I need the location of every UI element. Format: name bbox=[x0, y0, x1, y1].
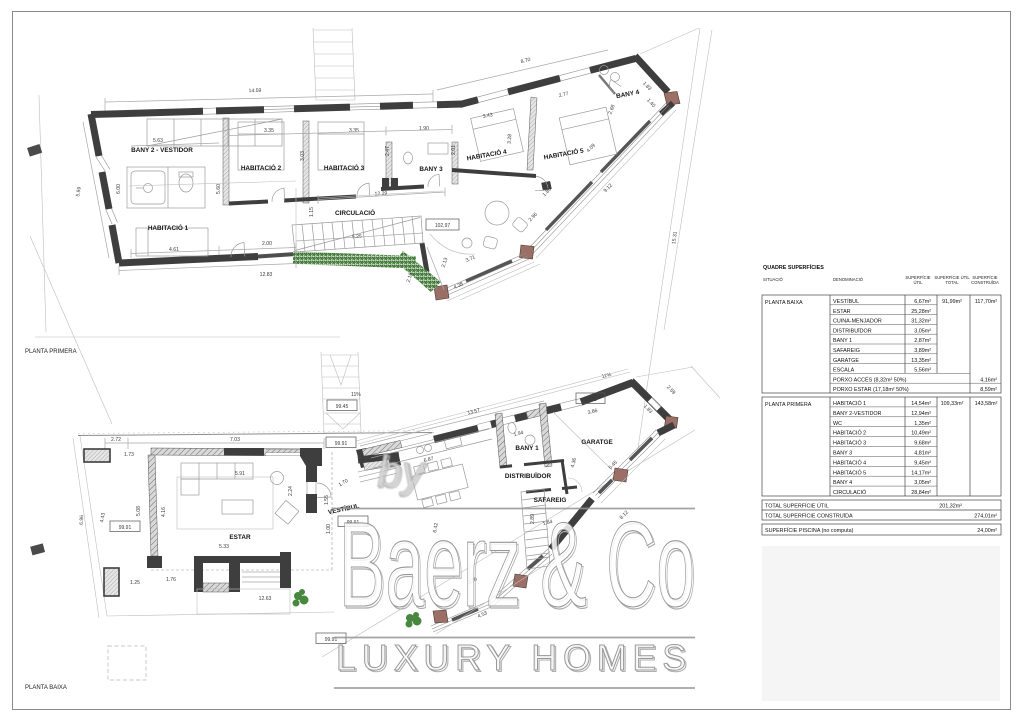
svg-text:99.45: 99.45 bbox=[336, 404, 349, 410]
svg-text:1.25: 1.25 bbox=[130, 580, 140, 586]
svg-text:PORXO ESTAR (17,18m² 50%): PORXO ESTAR (17,18m² 50%) bbox=[833, 387, 909, 393]
svg-text:BANY 2-VESTIDOR: BANY 2-VESTIDOR bbox=[833, 411, 882, 417]
svg-text:4,81m²: 4,81m² bbox=[914, 451, 931, 457]
svg-text:5.91: 5.91 bbox=[235, 471, 245, 477]
svg-text:HABITACIÓ 4: HABITACIÓ 4 bbox=[833, 459, 866, 466]
svg-text:TOTAL: TOTAL bbox=[945, 280, 959, 285]
svg-text:14,17m²: 14,17m² bbox=[911, 470, 931, 476]
svg-text:3,05m²: 3,05m² bbox=[914, 328, 931, 334]
svg-text:274,01m²: 274,01m² bbox=[974, 514, 997, 520]
svg-text:14.59: 14.59 bbox=[249, 88, 262, 94]
svg-text:5.60: 5.60 bbox=[216, 184, 222, 194]
svg-text:3.03: 3.03 bbox=[300, 151, 306, 161]
svg-text:TOTAL SUPERFÍCIE CONSTRUÏDA: TOTAL SUPERFÍCIE CONSTRUÏDA bbox=[765, 513, 853, 520]
svg-text:5.63: 5.63 bbox=[153, 138, 163, 144]
svg-text:HABITACIÓ 5: HABITACIÓ 5 bbox=[833, 469, 866, 476]
svg-text:12.63: 12.63 bbox=[259, 596, 272, 602]
svg-text:CIRCULACIÓ: CIRCULACIÓ bbox=[335, 208, 375, 217]
svg-text:2,87m²: 2,87m² bbox=[914, 338, 931, 344]
svg-text:ÚTIL: ÚTIL bbox=[913, 280, 923, 285]
svg-text:28,84m²: 28,84m² bbox=[911, 490, 931, 496]
svg-text:5,56m²: 5,56m² bbox=[914, 368, 931, 374]
svg-text:LUXURY HOMES: LUXURY HOMES bbox=[336, 637, 692, 678]
svg-text:102,97: 102,97 bbox=[435, 223, 451, 229]
svg-text:117,70m²: 117,70m² bbox=[975, 299, 998, 305]
svg-text:BANY 3: BANY 3 bbox=[419, 166, 443, 173]
svg-text:8,59m²: 8,59m² bbox=[980, 387, 997, 393]
svg-text:PLANTA BAIXA: PLANTA BAIXA bbox=[25, 685, 67, 691]
svg-text:HABITACIÓ 2: HABITACIÓ 2 bbox=[833, 430, 866, 437]
svg-text:PLANTA PRIMERA: PLANTA PRIMERA bbox=[765, 402, 812, 408]
svg-text:9,68m²: 9,68m² bbox=[914, 441, 931, 447]
svg-text:1.90: 1.90 bbox=[419, 126, 429, 132]
svg-text:11%: 11% bbox=[351, 392, 361, 398]
svg-text:WC: WC bbox=[833, 421, 842, 427]
svg-text:CONSTRUÏDA: CONSTRUÏDA bbox=[971, 280, 999, 285]
svg-text:HABITACIÓ 1: HABITACIÓ 1 bbox=[148, 223, 189, 232]
svg-text:99.91: 99.91 bbox=[335, 441, 348, 447]
svg-text:12,94m²: 12,94m² bbox=[911, 411, 931, 417]
svg-text:SAFAREIG: SAFAREIG bbox=[833, 348, 860, 354]
svg-text:109,33m²: 109,33m² bbox=[941, 401, 964, 407]
svg-text:1.15: 1.15 bbox=[309, 207, 315, 217]
svg-text:BANY 4: BANY 4 bbox=[833, 480, 852, 486]
svg-text:CIRCULACIÓ: CIRCULACIÓ bbox=[833, 489, 866, 496]
svg-text:10,49m²: 10,49m² bbox=[911, 431, 931, 437]
svg-text:DISTRIBUÏDOR: DISTRIBUÏDOR bbox=[505, 472, 552, 480]
svg-text:3,89m²: 3,89m² bbox=[914, 348, 931, 354]
svg-text:ESCALA: ESCALA bbox=[833, 368, 855, 374]
svg-text:143,58m²: 143,58m² bbox=[975, 401, 998, 407]
svg-text:HABITACIÓ 3: HABITACIÓ 3 bbox=[324, 163, 365, 172]
svg-text:SUPERFÍCIE PISCINA (no computa: SUPERFÍCIE PISCINA (no computa) bbox=[765, 527, 854, 534]
svg-text:3.28: 3.28 bbox=[507, 134, 514, 144]
svg-text:3,05m²: 3,05m² bbox=[914, 480, 931, 486]
svg-text:2.01: 2.01 bbox=[451, 145, 457, 155]
svg-text:2.72: 2.72 bbox=[111, 437, 121, 443]
svg-text:99.91: 99.91 bbox=[119, 525, 132, 531]
svg-text:1.55: 1.55 bbox=[324, 495, 330, 505]
svg-text:3.35: 3.35 bbox=[349, 128, 359, 134]
svg-text:PLANTA BAIXA: PLANTA BAIXA bbox=[765, 300, 803, 306]
svg-text:BANY 2 - VESTIDOR: BANY 2 - VESTIDOR bbox=[131, 147, 193, 154]
svg-text:4.16: 4.16 bbox=[161, 507, 167, 517]
svg-text:12.83: 12.83 bbox=[260, 272, 273, 278]
svg-text:HABITACIÓ 3: HABITACIÓ 3 bbox=[833, 440, 866, 447]
svg-text:VESTÍBUL: VESTÍBUL bbox=[833, 298, 859, 305]
svg-text:25,28m²: 25,28m² bbox=[911, 309, 931, 315]
svg-text:31,32m²: 31,32m² bbox=[911, 319, 931, 325]
svg-text:ESTAR: ESTAR bbox=[229, 534, 251, 541]
svg-text:ESTAR: ESTAR bbox=[833, 309, 851, 315]
svg-text:BANY 1: BANY 1 bbox=[515, 445, 539, 452]
svg-text:DISTRIBUÏDOR: DISTRIBUÏDOR bbox=[833, 327, 872, 334]
svg-text:TOTAL SUPERFÍCIE ÚTIL: TOTAL SUPERFÍCIE ÚTIL bbox=[765, 503, 829, 510]
svg-text:91,99m²: 91,99m² bbox=[942, 299, 962, 305]
svg-text:GARATGE: GARATGE bbox=[581, 439, 613, 446]
svg-text:1.76: 1.76 bbox=[166, 577, 176, 583]
svg-text:99.91: 99.91 bbox=[584, 397, 597, 403]
svg-text:HABITACIÓ 1: HABITACIÓ 1 bbox=[833, 400, 866, 407]
svg-text:5.33: 5.33 bbox=[219, 544, 229, 550]
svg-text:5.08: 5.08 bbox=[136, 506, 142, 516]
svg-text:6,67m²: 6,67m² bbox=[914, 299, 931, 305]
svg-text:6.96: 6.96 bbox=[79, 515, 86, 525]
svg-text:QUADRE SUPERFÍCIES: QUADRE SUPERFÍCIES bbox=[763, 263, 824, 271]
svg-text:Baerz & Co: Baerz & Co bbox=[339, 496, 695, 632]
svg-text:7.03: 7.03 bbox=[230, 437, 240, 443]
svg-text:6.00: 6.00 bbox=[116, 184, 122, 194]
svg-text:DENOMINACIÓ: DENOMINACIÓ bbox=[833, 277, 864, 282]
svg-text:CUINA-MENJADOR: CUINA-MENJADOR bbox=[833, 319, 882, 325]
svg-text:BANY 3: BANY 3 bbox=[833, 451, 852, 457]
svg-text:2.00: 2.00 bbox=[262, 241, 272, 247]
svg-text:4,16m²: 4,16m² bbox=[980, 377, 997, 383]
svg-text:3.35: 3.35 bbox=[264, 128, 274, 134]
svg-text:PLANTA PRIMERA: PLANTA PRIMERA bbox=[25, 349, 77, 355]
svg-text:1,35m²: 1,35m² bbox=[914, 421, 931, 427]
svg-text:PORXO ACCÉS (8,32m² 50%): PORXO ACCÉS (8,32m² 50%) bbox=[833, 376, 907, 383]
svg-text:GARATGE: GARATGE bbox=[833, 358, 859, 364]
svg-text:1.00: 1.00 bbox=[326, 524, 332, 534]
svg-text:14,54m²: 14,54m² bbox=[911, 401, 931, 407]
svg-text:9,45m²: 9,45m² bbox=[914, 460, 931, 466]
svg-text:1.73: 1.73 bbox=[124, 452, 134, 458]
svg-text:24,00m²: 24,00m² bbox=[977, 528, 997, 534]
svg-text:13,35m²: 13,35m² bbox=[911, 358, 931, 364]
svg-text:by: by bbox=[377, 447, 426, 496]
svg-text:BANY 1: BANY 1 bbox=[833, 338, 852, 344]
svg-text:2.47: 2.47 bbox=[385, 146, 391, 156]
svg-text:2.24: 2.24 bbox=[288, 486, 294, 496]
svg-text:HABITACIÓ 2: HABITACIÓ 2 bbox=[241, 163, 282, 172]
svg-text:SITUACIÓ: SITUACIÓ bbox=[763, 277, 784, 282]
svg-text:201,32m²: 201,32m² bbox=[939, 504, 962, 510]
